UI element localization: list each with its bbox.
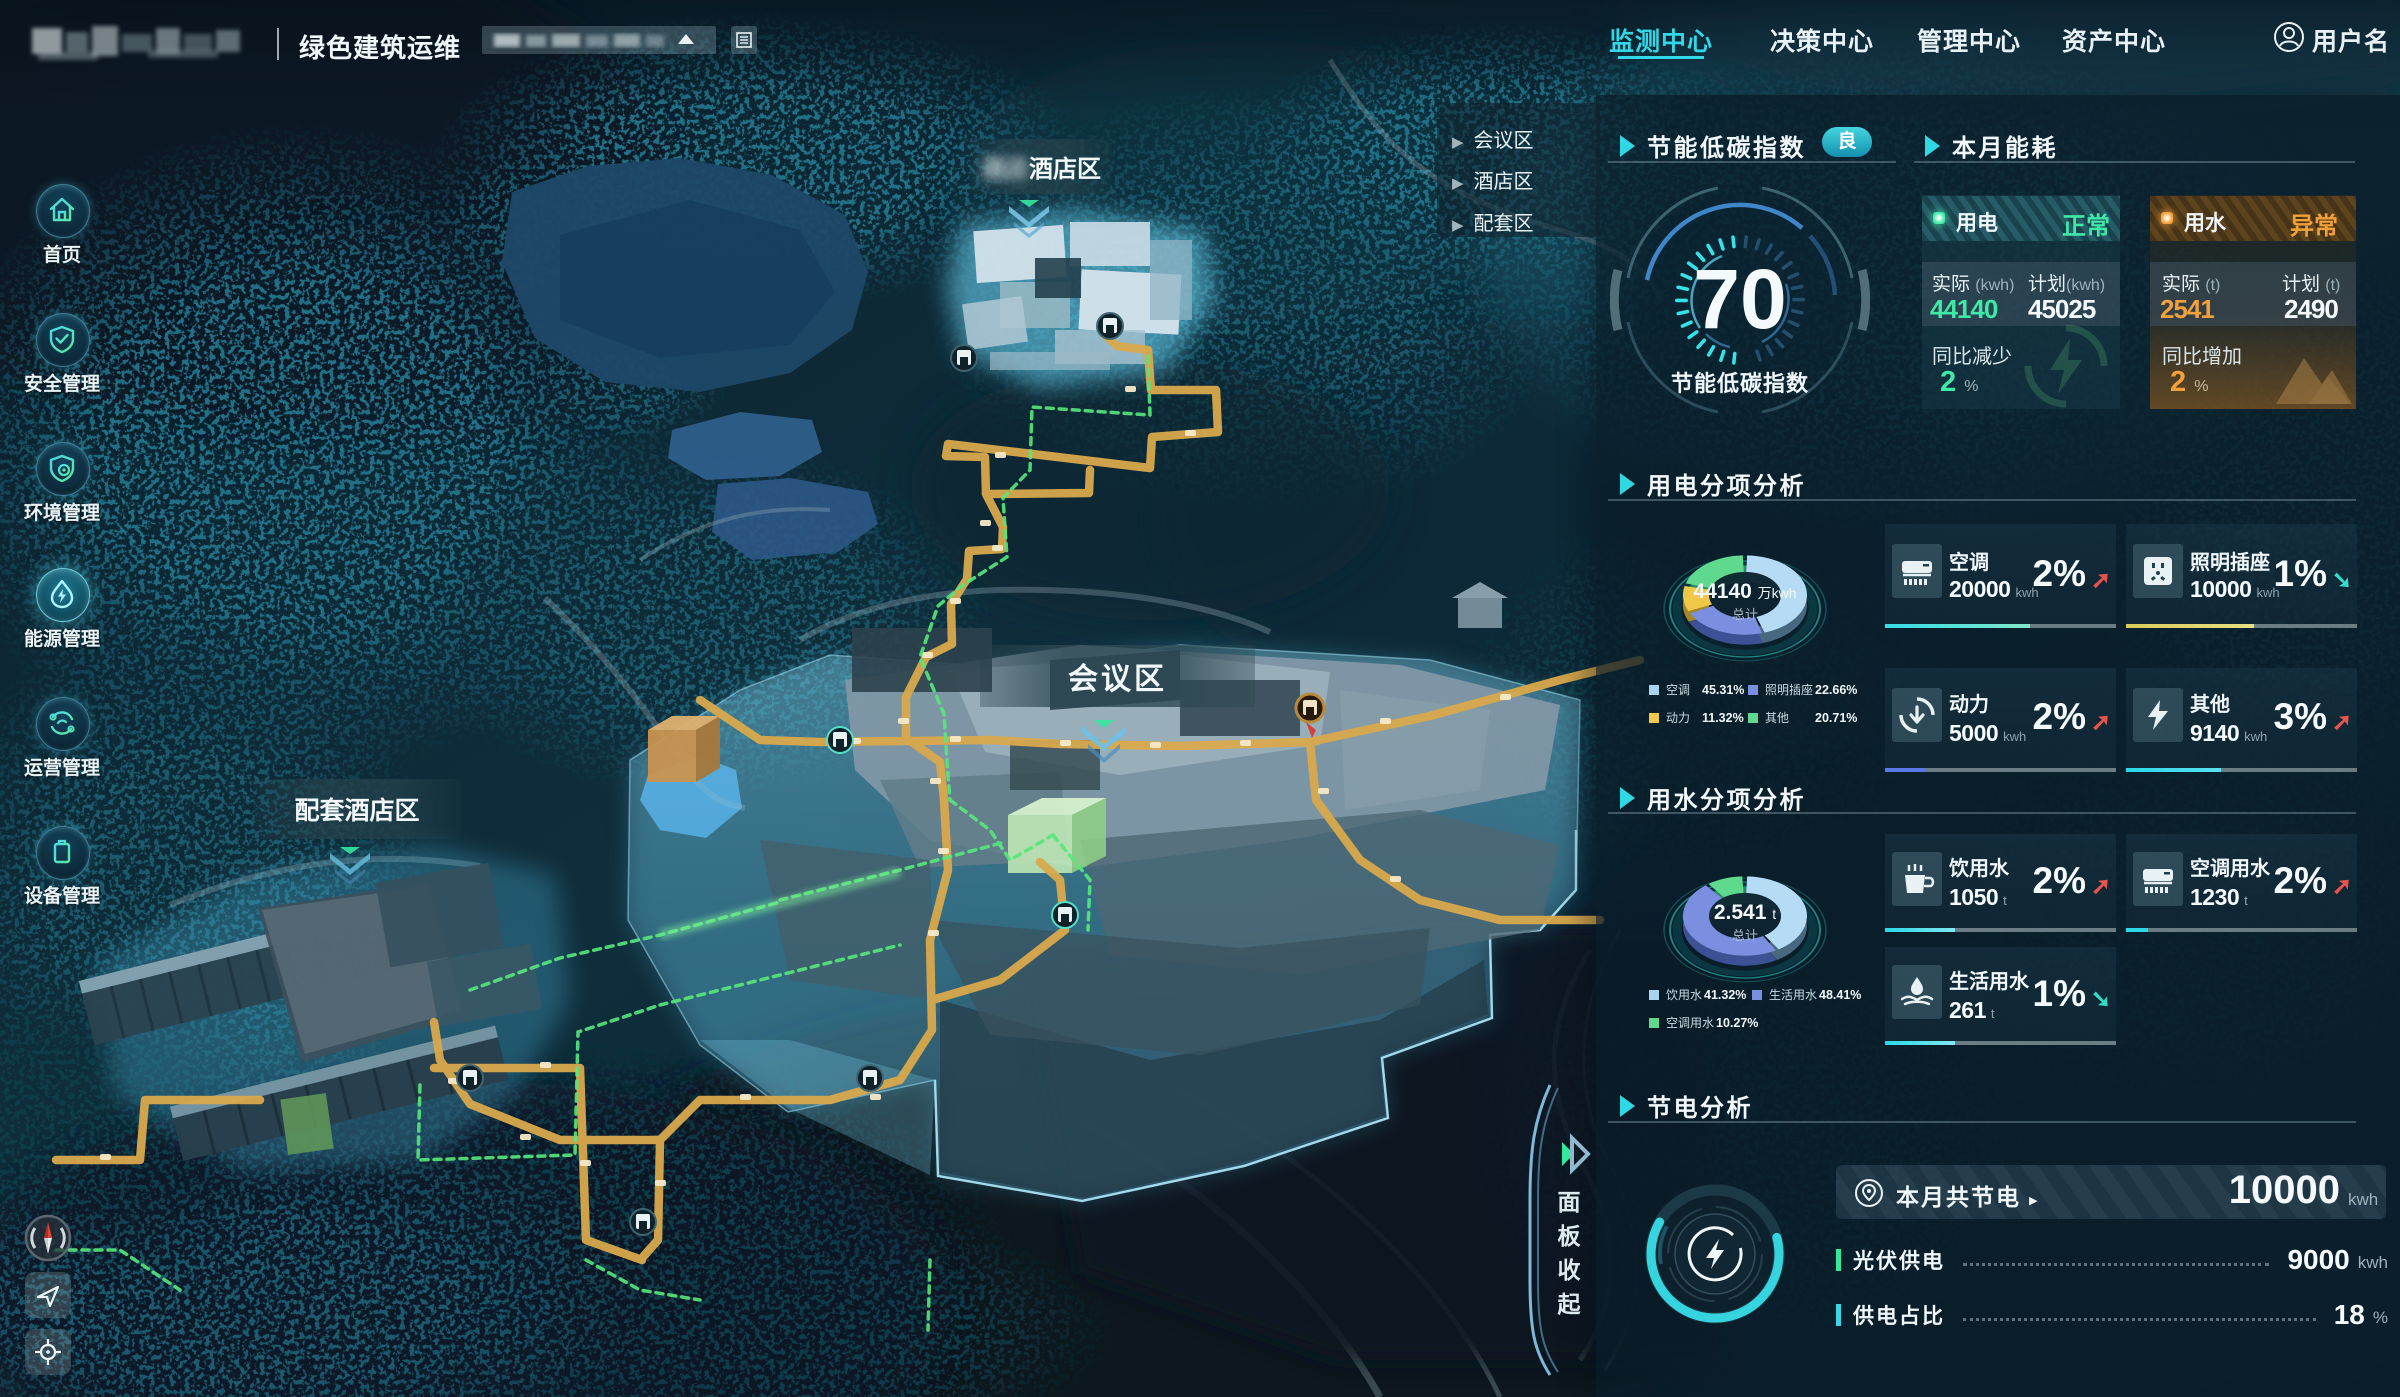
- svg-text:70: 70: [1693, 252, 1786, 346]
